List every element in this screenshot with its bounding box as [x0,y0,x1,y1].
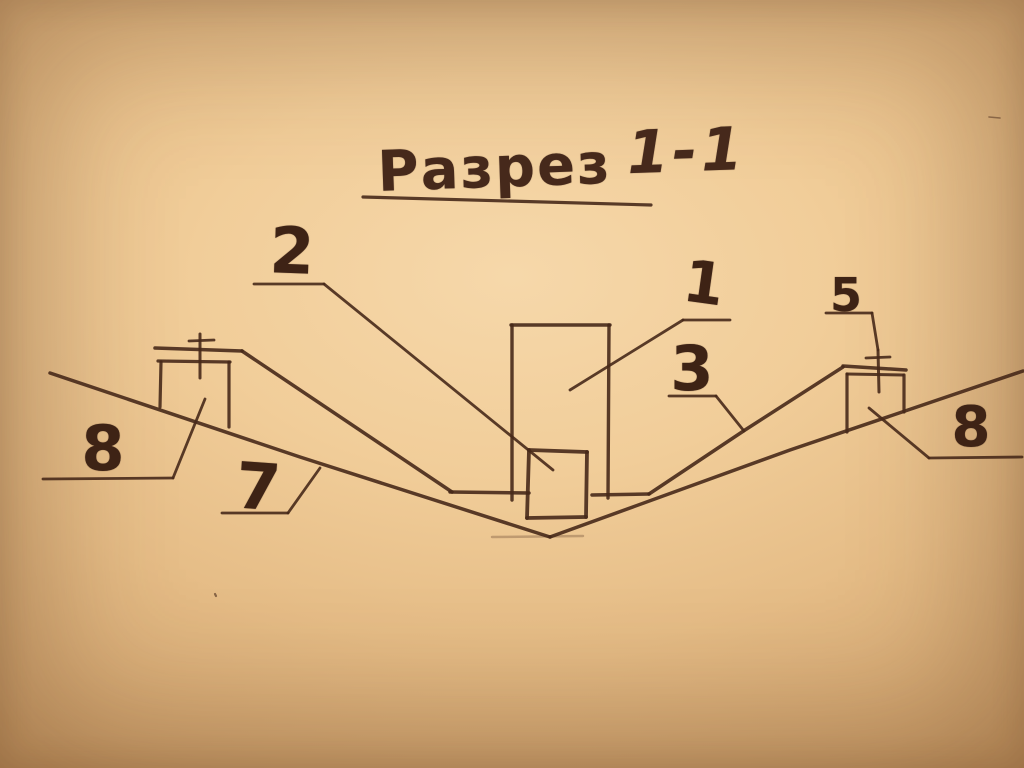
callout-label-8-left: 8 [81,418,124,480]
callout-8-left-leader [173,399,205,478]
paper-speck-bottom-left [215,594,216,596]
base-block-bottom-edge [527,517,586,518]
photo-of-hand-drawn-section: Разрез1-1 1 2 3 5 7 8 8 [0,0,1024,768]
right-anchor-pin-bar [866,357,890,358]
paper-speck-top-right [989,117,1000,118]
section-drawing [0,0,1024,768]
column-right-edge [608,325,609,498]
callout-2-leader [324,284,553,470]
callout-label-5: 5 [830,272,862,318]
vertex-shadow-line [492,536,583,537]
callout-label-1: 1 [680,251,728,314]
callout-label-7: 7 [234,455,283,522]
callout-label-3: 3 [670,338,713,400]
callout-3-leader [716,396,744,431]
title-word: Разрез [376,132,612,205]
callout-5-leader [872,313,878,350]
drawing-title: Разрез1-1 [376,123,747,205]
base-block-top-edge [529,450,587,452]
callout-label-8-right: 8 [952,400,991,456]
ground-line-left [50,373,550,537]
callout-7-leader [288,468,320,513]
lining-berm-top-right [843,366,906,370]
lining-floor-left [450,492,529,493]
left-block-top-edge [158,361,230,362]
callout-8-right-leader [869,408,929,458]
lining-floor-right [592,494,649,495]
left-block-left-edge [160,362,161,407]
right-block-cap-line [847,374,903,375]
title-section-numbers: 1-1 [626,114,748,187]
base-block-left-edge [527,450,529,518]
base-block-right-edge [586,452,587,517]
callout-1-leader [570,320,683,390]
left-anchor-pin-bar [189,340,214,341]
callout-label-2: 2 [269,219,316,285]
